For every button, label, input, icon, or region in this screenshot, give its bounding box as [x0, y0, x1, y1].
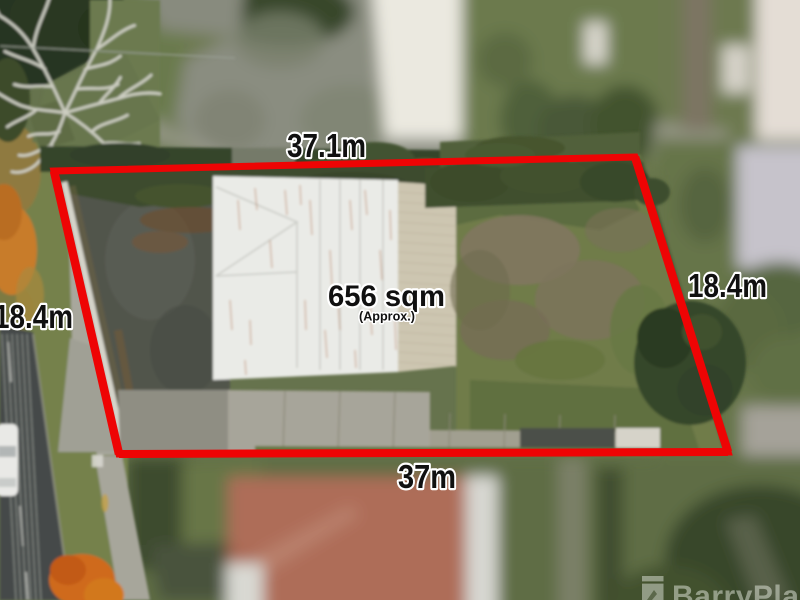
svg-text:656 sqm: 656 sqm: [328, 280, 445, 313]
svg-text:37m: 37m: [398, 459, 456, 496]
svg-text:18.4m: 18.4m: [0, 299, 73, 336]
svg-text:(Approx.): (Approx.): [359, 310, 415, 324]
svg-text:BarryPlant: BarryPlant: [672, 580, 800, 600]
svg-text:37.1m: 37.1m: [287, 128, 366, 165]
svg-text:18.4m: 18.4m: [688, 268, 767, 305]
